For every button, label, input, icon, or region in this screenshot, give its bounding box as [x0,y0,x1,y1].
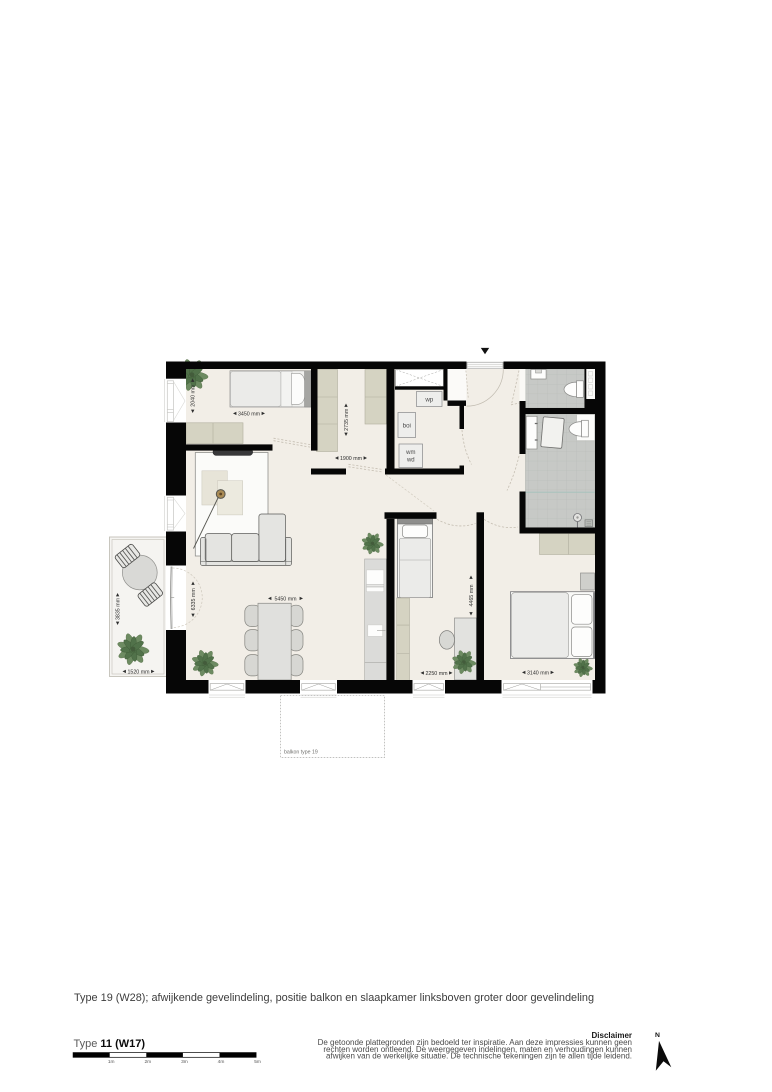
svg-text:3m: 3m [181,1059,188,1065]
svg-text:2m: 2m [144,1059,151,1065]
svg-text:afwijken van de werkelijke sit: afwijken van de werkelijke situatie. De … [326,1051,632,1060]
svg-text:1m: 1m [108,1059,115,1065]
svg-text:5m: 5m [254,1059,261,1065]
svg-text:4m: 4m [218,1059,225,1065]
svg-text:N: N [655,1032,660,1039]
